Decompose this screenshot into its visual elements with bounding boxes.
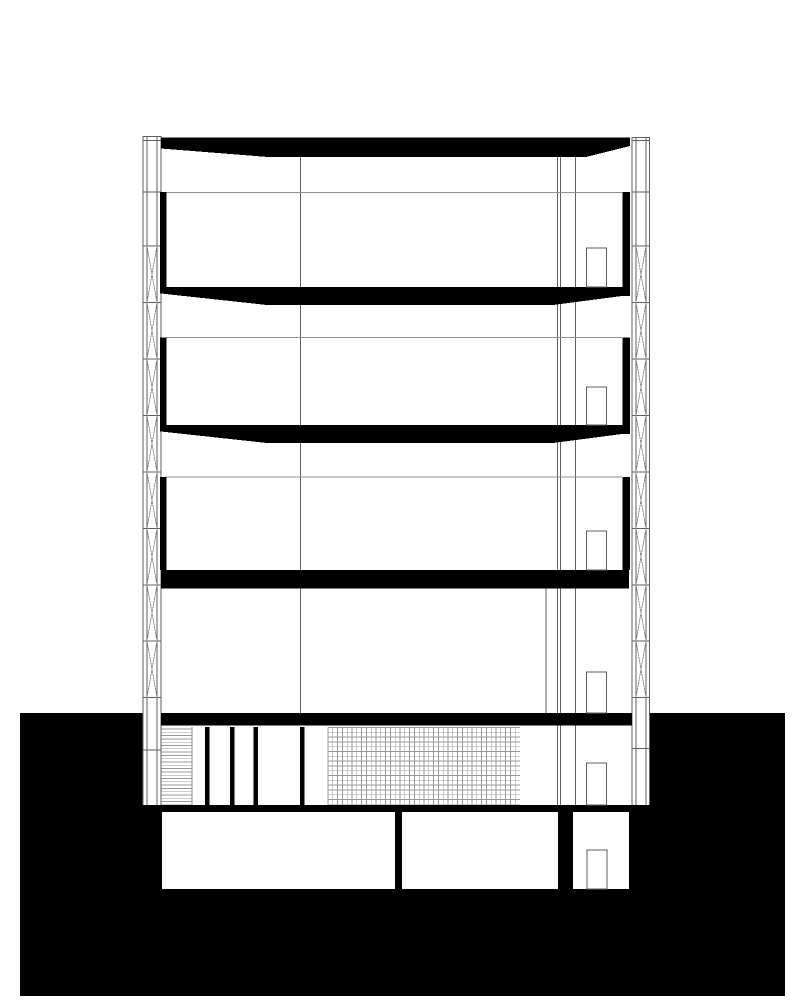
ground-floor-ceiling-slab: [161, 713, 632, 726]
door-openings: [587, 248, 608, 889]
interior-partition-lines: [143, 155, 650, 805]
ground-wall-cut: [254, 727, 259, 805]
spandrel-left-level4: [160, 192, 167, 294]
ground-wall-cut: [300, 727, 305, 805]
door-opening-level3: [587, 531, 607, 570]
door-opening-ground: [587, 763, 607, 805]
door-opening-level5: [587, 248, 607, 287]
building-section-drawing: [0, 0, 801, 1000]
floor-slab-level4: [161, 287, 629, 305]
spandrel-right-level3: [623, 338, 631, 435]
basement-room-left: [162, 812, 395, 889]
spandrel-left-level2: [160, 477, 167, 570]
section-drawing-page: [0, 0, 801, 1000]
ground-wall-cut: [230, 727, 235, 805]
spandrel-right-level2: [623, 477, 631, 570]
door-opening-level4: [587, 387, 607, 425]
grid-hatch: [328, 728, 520, 806]
spandrel-right-level4: [623, 192, 631, 296]
floor-slab-level2: [161, 570, 629, 589]
cut-structure-poche: [148, 138, 645, 813]
ground-wall-cut: [205, 727, 210, 805]
spandrel-left-level3: [160, 338, 167, 432]
ground-floor-void: [143, 713, 649, 805]
basement-room-middle: [402, 812, 558, 889]
facade-mullion-left: [143, 136, 161, 805]
door-opening-level2: [587, 672, 607, 713]
door-opening-basement: [587, 850, 607, 889]
floor-slab-level3: [161, 425, 629, 443]
roof-slab: [161, 138, 630, 158]
facade-mullion-right: [632, 137, 650, 805]
basement-ceiling-slab: [148, 805, 645, 812]
